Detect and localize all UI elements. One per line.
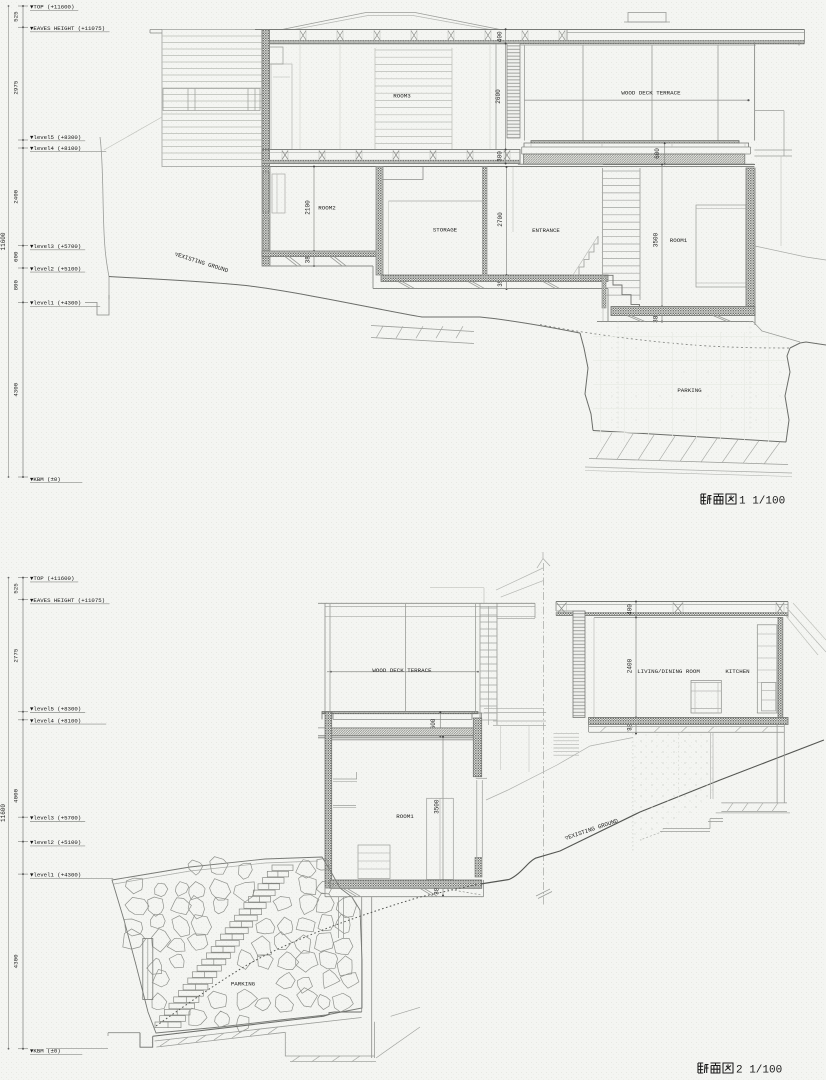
svg-text:3500: 3500 <box>653 232 660 247</box>
svg-text:▼level1 (+4300): ▼level1 (+4300) <box>30 300 81 307</box>
svg-text:800: 800 <box>13 279 20 290</box>
svg-text:WOOD DECK TERRACE: WOOD DECK TERRACE <box>621 90 681 97</box>
svg-text:▼level2 (+5100): ▼level2 (+5100) <box>30 265 81 272</box>
svg-text:▼level1 (+4300): ▼level1 (+4300) <box>30 872 81 879</box>
svg-text:LIVING/DINING ROOM: LIVING/DINING ROOM <box>637 668 700 675</box>
svg-text:600: 600 <box>13 251 20 262</box>
svg-text:KITCHEN: KITCHEN <box>725 668 750 675</box>
svg-text:2400: 2400 <box>626 658 633 673</box>
svg-text:11600: 11600 <box>0 804 7 822</box>
svg-text:525: 525 <box>13 11 20 22</box>
svg-text:525: 525 <box>13 583 20 594</box>
svg-text:ROOM3: ROOM3 <box>393 93 411 100</box>
svg-text:▼level5 (+8300): ▼level5 (+8300) <box>30 134 81 141</box>
svg-text:▼level4 (+8100): ▼level4 (+8100) <box>30 145 81 152</box>
svg-text:ENTRANCE: ENTRANCE <box>532 227 560 234</box>
svg-text:11600: 11600 <box>0 232 7 250</box>
svg-text:2700: 2700 <box>497 212 504 227</box>
svg-text:2400: 2400 <box>13 189 20 203</box>
svg-text:▼level5 (+8300): ▼level5 (+8300) <box>30 706 81 713</box>
svg-text:ROOM1: ROOM1 <box>670 237 688 244</box>
svg-text:▼level3 (+5700): ▼level3 (+5700) <box>30 243 81 250</box>
svg-text:300: 300 <box>497 151 504 162</box>
svg-text:400: 400 <box>626 604 633 615</box>
svg-text:2775: 2775 <box>13 648 20 662</box>
svg-text:600: 600 <box>654 148 661 159</box>
svg-text:4300: 4300 <box>13 954 20 968</box>
svg-text:▼level4 (+8100): ▼level4 (+8100) <box>30 717 81 724</box>
svg-text:▼EAVES HEIGHT (+11075): ▼EAVES HEIGHT (+11075) <box>30 25 105 32</box>
svg-text:2600: 2600 <box>495 89 502 104</box>
svg-text:3500: 3500 <box>433 799 440 814</box>
svg-text:4300: 4300 <box>13 382 20 396</box>
svg-text:ROOM2: ROOM2 <box>318 205 336 212</box>
svg-text:4000: 4000 <box>13 788 20 802</box>
svg-text:PARKING: PARKING <box>677 387 702 394</box>
svg-text:▼TOP (+11600): ▼TOP (+11600) <box>30 575 74 582</box>
svg-text:WOOD DECK TERRACE: WOOD DECK TERRACE <box>372 667 432 674</box>
svg-text:▼level3 (+5700): ▼level3 (+5700) <box>30 815 81 822</box>
svg-text:▼level2 (+5100): ▼level2 (+5100) <box>30 839 81 846</box>
svg-text:2975: 2975 <box>13 80 20 94</box>
svg-text:2100: 2100 <box>305 200 312 215</box>
svg-text:400: 400 <box>497 31 504 42</box>
svg-text:1 1/100: 1 1/100 <box>739 496 785 508</box>
svg-text:PARKING: PARKING <box>231 981 256 988</box>
svg-text:2 1/100: 2 1/100 <box>736 1065 782 1077</box>
svg-text:▼EAVES HEIGHT (+11075): ▼EAVES HEIGHT (+11075) <box>30 597 105 604</box>
svg-text:▼TOP (+11600): ▼TOP (+11600) <box>30 4 74 11</box>
svg-text:STORAGE: STORAGE <box>433 227 458 234</box>
svg-text:▼KBM (±0): ▼KBM (±0) <box>30 476 61 483</box>
svg-text:ROOM1: ROOM1 <box>396 813 414 820</box>
